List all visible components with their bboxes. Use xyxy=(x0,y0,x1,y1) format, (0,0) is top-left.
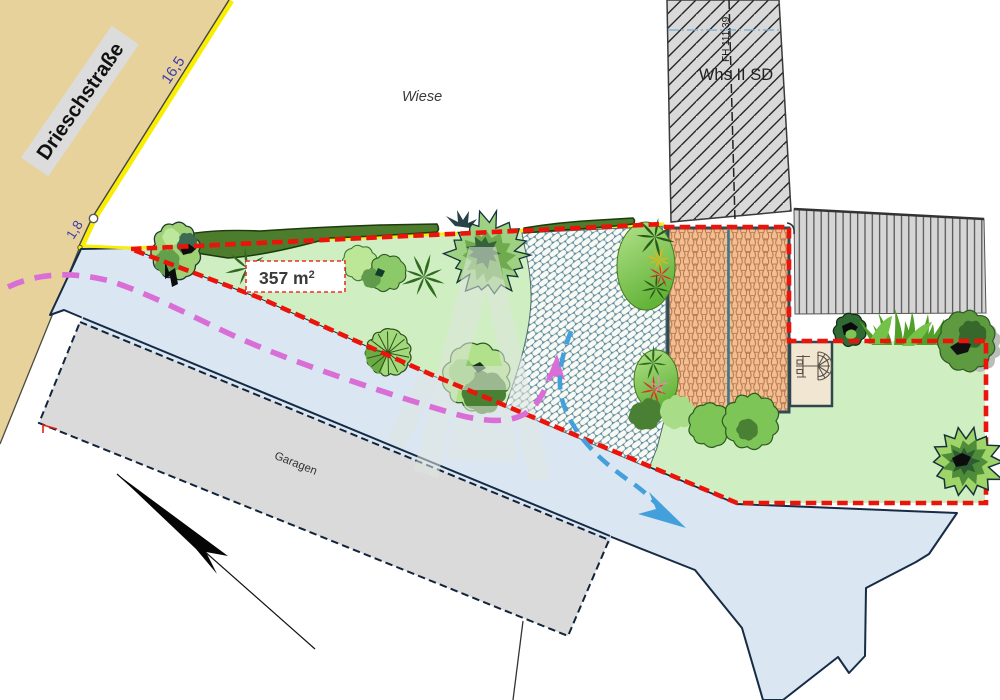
svg-text:357 m2: 357 m2 xyxy=(259,268,315,288)
svg-text:Whs II SD: Whs II SD xyxy=(699,66,773,84)
svg-text:FH 111,39: FH 111,39 xyxy=(721,16,732,62)
svg-text:Wiese: Wiese xyxy=(402,89,442,105)
